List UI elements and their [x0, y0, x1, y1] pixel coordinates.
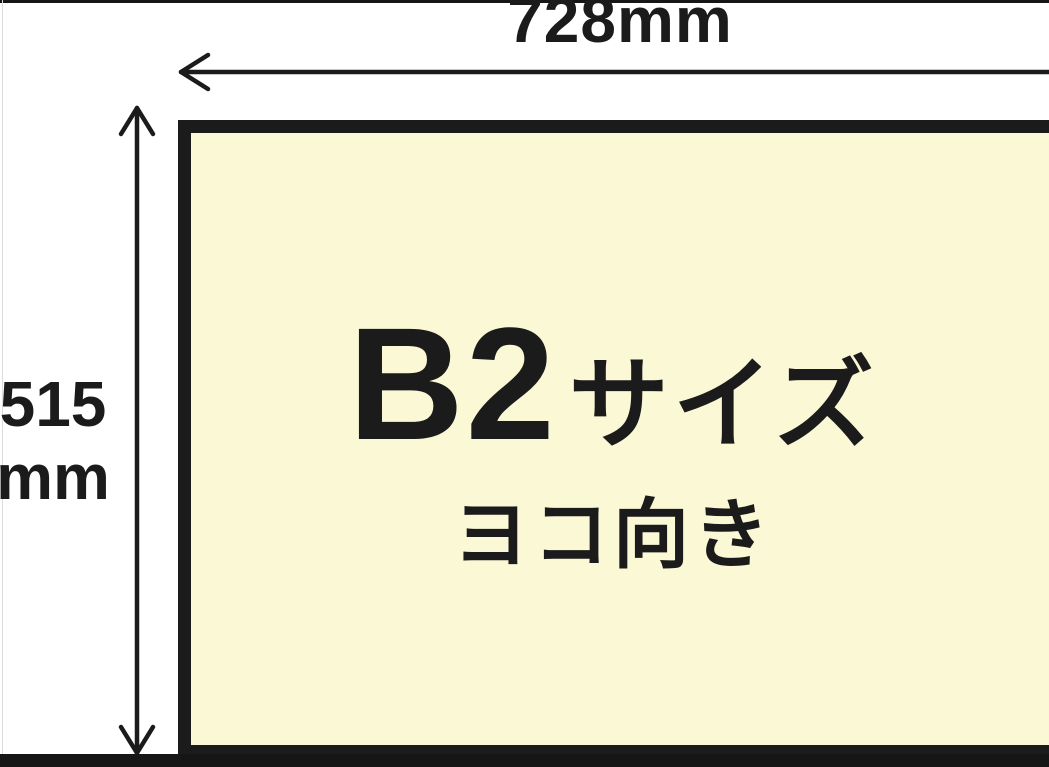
width-dimension-arrow [170, 50, 1049, 95]
paper-size-suffix: サイズ [569, 355, 878, 455]
width-dimension-label: 728mm [470, 0, 770, 52]
height-dimension-label: 515 mm [0, 372, 116, 509]
height-dimension-arrow [114, 99, 160, 761]
paper-size-diagram: 728mm 515 mm B2 サイズ ヨコ向き [0, 0, 1049, 767]
paper-size-title: B2 サイズ [348, 304, 878, 464]
height-dimension-value: 515 [0, 372, 116, 436]
paper-size-name: B2 [348, 304, 557, 464]
height-dimension-unit: mm [0, 445, 116, 509]
bottom-crop-edge [0, 754, 1049, 767]
paper-orientation-label: ヨコ向き [453, 498, 773, 574]
paper-rectangle: B2 サイズ ヨコ向き [178, 120, 1049, 758]
